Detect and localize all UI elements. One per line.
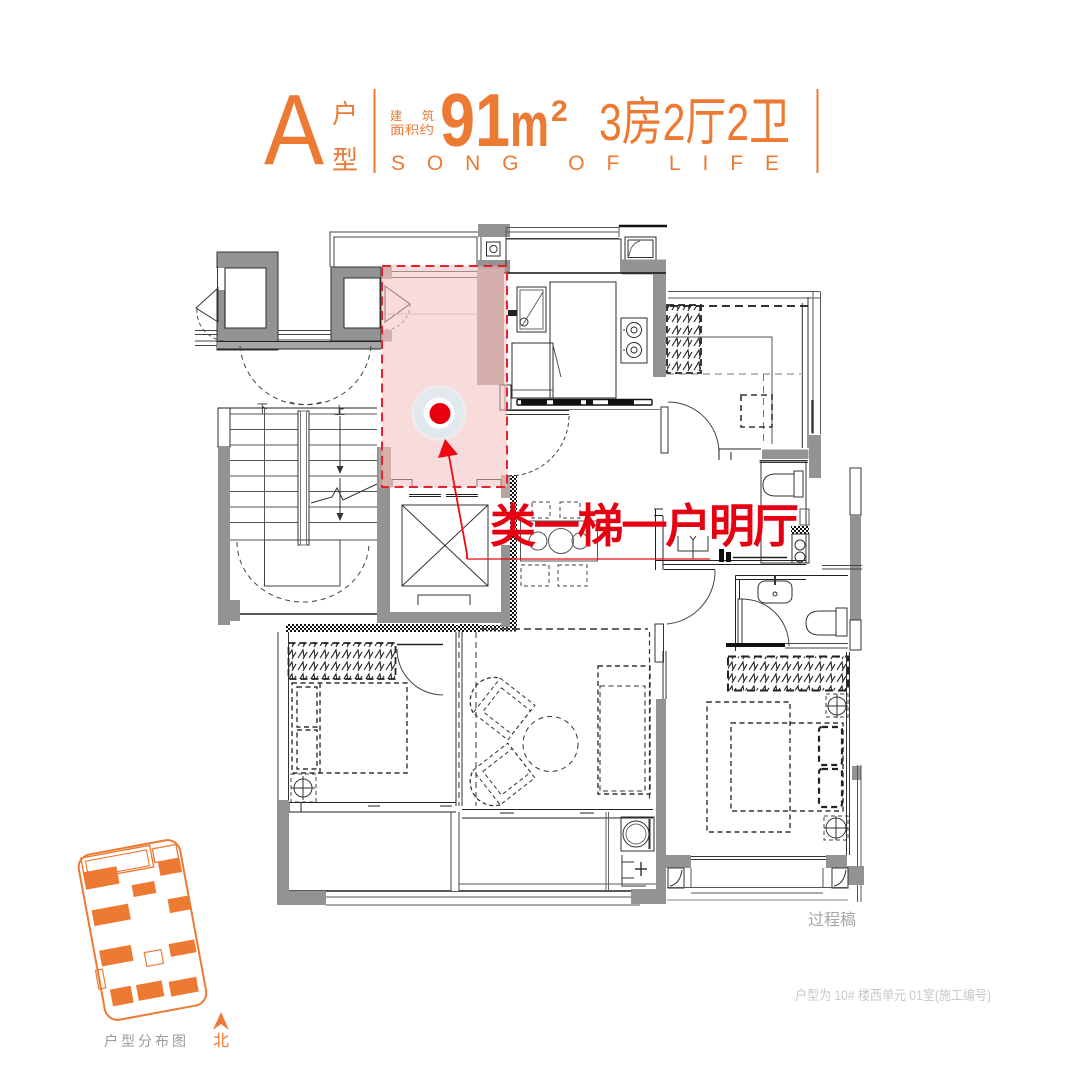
svg-text:2: 2 xyxy=(551,95,568,128)
svg-text:m: m xyxy=(510,91,549,160)
svg-text:户型为 10# 楼西单元 01室(施工编号): 户型为 10# 楼西单元 01室(施工编号) xyxy=(795,987,991,1003)
svg-text:型: 型 xyxy=(332,145,358,175)
svg-text:类一梯一户明厅: 类一梯一户明厅 xyxy=(490,500,798,552)
svg-text:A: A xyxy=(264,74,324,186)
svg-text:91: 91 xyxy=(440,78,510,162)
svg-text:户: 户 xyxy=(332,99,358,129)
svg-text:过程稿: 过程稿 xyxy=(808,911,856,929)
svg-text:北: 北 xyxy=(213,1032,229,1050)
svg-text:下: 下 xyxy=(257,403,268,415)
svg-text:户型分布图: 户型分布图 xyxy=(104,1033,186,1049)
svg-text:面积约: 面积约 xyxy=(390,122,434,137)
svg-text:3房2厅2卫: 3房2厅2卫 xyxy=(599,94,790,152)
svg-text:上: 上 xyxy=(334,404,345,417)
